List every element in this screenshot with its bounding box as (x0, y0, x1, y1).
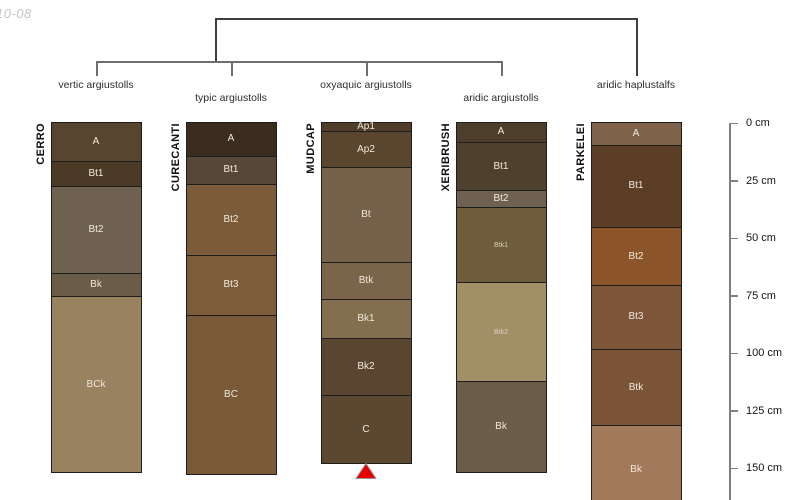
classification-label: aridic haplustalfs (556, 79, 716, 91)
horizon-layer: Bk (52, 274, 141, 297)
depth-axis-tick (729, 468, 738, 470)
depth-axis-label: 0 cm (746, 117, 770, 129)
horizon-label: Bt (361, 210, 370, 220)
horizon-label: Bk (495, 422, 507, 432)
classification-label: vertic argiustolls (16, 79, 176, 91)
horizon-layer: Bt3 (187, 256, 276, 316)
horizon-layer: Bk (457, 382, 546, 472)
series-name-label: XERIBRUSH (440, 123, 452, 191)
depth-axis-tick (729, 353, 738, 355)
horizon-layer: Bt2 (187, 185, 276, 256)
horizon-layer: BCk (52, 297, 141, 472)
horizon-label: Btk (629, 383, 643, 393)
soil-column-curecanti: ABt1Bt2Bt3BC (186, 122, 277, 476)
tree-leaf-stem (501, 61, 503, 76)
horizon-label: Bk1 (357, 314, 374, 324)
horizon-layer: Ap1 (322, 123, 411, 132)
horizon-label: Btk (359, 276, 373, 286)
depth-axis-tick (729, 123, 738, 125)
watermark-text: 10-08 (0, 6, 32, 21)
horizon-label: Bt3 (223, 280, 238, 290)
horizon-layer: Bk (592, 426, 681, 500)
depth-axis-label: 50 cm (746, 232, 776, 244)
horizon-layer: Bk1 (322, 300, 411, 339)
horizon-label: A (93, 137, 100, 147)
horizon-label: Bk (90, 280, 102, 290)
tree-leaf-stem (96, 61, 98, 76)
horizon-layer: A (187, 123, 276, 158)
tree-leaf-stem (366, 61, 368, 76)
tree-cluster-bar (96, 61, 501, 63)
horizon-layer: Bt2 (52, 187, 141, 274)
horizon-layer: Btk1 (457, 208, 546, 284)
tree-leaf-stem (231, 61, 233, 76)
classification-label: oxyaquic argiustolls (286, 79, 446, 91)
soil-column-xeribrush: ABt1Bt2Btk1Btk2Bk (456, 122, 547, 474)
horizon-layer: Bt (322, 168, 411, 262)
horizon-label: Btk1 (494, 242, 508, 249)
horizon-layer: C (322, 396, 411, 463)
horizon-layer: A (52, 123, 141, 162)
horizon-layer: Bt1 (187, 157, 276, 185)
soil-column-mudcap: Ap1Ap2BtBtkBk1Bk2C (321, 122, 412, 464)
horizon-layer: Bk2 (322, 339, 411, 397)
horizon-label: Bt1 (88, 169, 103, 179)
horizon-label: Bt2 (223, 215, 238, 225)
horizon-label: Bt2 (88, 225, 103, 235)
horizon-layer: Bt1 (592, 146, 681, 229)
series-name-label: CERRO (35, 123, 47, 165)
tree-root-right-stem (636, 18, 638, 76)
horizon-layer: Bt1 (52, 162, 141, 187)
soil-profile-chart: 10-08 vertic argiustollstypic argiustoll… (0, 0, 800, 500)
classification-label: aridic argiustolls (421, 92, 581, 104)
series-name-label: MUDCAP (305, 123, 317, 174)
horizon-layer: BC (187, 316, 276, 475)
horizon-layer: Btk (592, 350, 681, 426)
horizon-label: Ap1 (357, 122, 375, 132)
horizon-label: Btk2 (494, 329, 508, 336)
horizon-label: Bk (630, 465, 642, 475)
depth-axis-tick (729, 410, 738, 412)
tree-root-left-stem (215, 18, 217, 61)
horizon-layer: Btk2 (457, 283, 546, 382)
soil-column-cerro: ABt1Bt2BkBCk (51, 122, 142, 474)
depth-axis-label: 100 cm (746, 347, 782, 359)
series-name-label: CURECANTI (170, 123, 182, 191)
depth-axis-tick (729, 238, 738, 240)
depth-axis-label: 150 cm (746, 462, 782, 474)
soil-column-parkelei: ABt1Bt2Bt3BtkBk (591, 122, 682, 500)
depth-axis-label: 125 cm (746, 405, 782, 417)
horizon-layer: A (592, 123, 681, 146)
horizon-layer: Bt2 (457, 191, 546, 207)
horizon-layer: Bt1 (457, 143, 546, 191)
horizon-label: Bt1 (493, 162, 508, 172)
horizon-label: BCk (87, 380, 106, 390)
horizon-label: A (228, 134, 235, 144)
horizon-layer: Ap2 (322, 132, 411, 169)
horizon-label: C (362, 425, 369, 435)
tree-root-bar (215, 18, 636, 20)
series-name-label: PARKELEI (575, 123, 587, 181)
horizon-label: Bt3 (628, 312, 643, 322)
depth-axis-label: 75 cm (746, 290, 776, 302)
horizon-label: A (633, 129, 640, 139)
horizon-label: Ap2 (357, 145, 375, 155)
horizon-label: Bk2 (357, 362, 374, 372)
horizon-layer: Btk (322, 263, 411, 300)
horizon-layer: Bt2 (592, 228, 681, 286)
depth-axis-tick (729, 180, 738, 182)
horizon-label: Bt2 (628, 252, 643, 262)
horizon-layer: A (457, 123, 546, 144)
horizon-layer: Bt3 (592, 286, 681, 350)
sample-marker-icon (355, 462, 377, 485)
depth-axis-tick (729, 295, 738, 297)
horizon-label: BC (224, 390, 238, 400)
horizon-label: A (498, 127, 505, 137)
horizon-label: Bt2 (493, 194, 508, 204)
classification-label: typic argiustolls (151, 92, 311, 104)
depth-axis-label: 25 cm (746, 175, 776, 187)
horizon-label: Bt1 (223, 165, 238, 175)
horizon-label: Bt1 (628, 181, 643, 191)
